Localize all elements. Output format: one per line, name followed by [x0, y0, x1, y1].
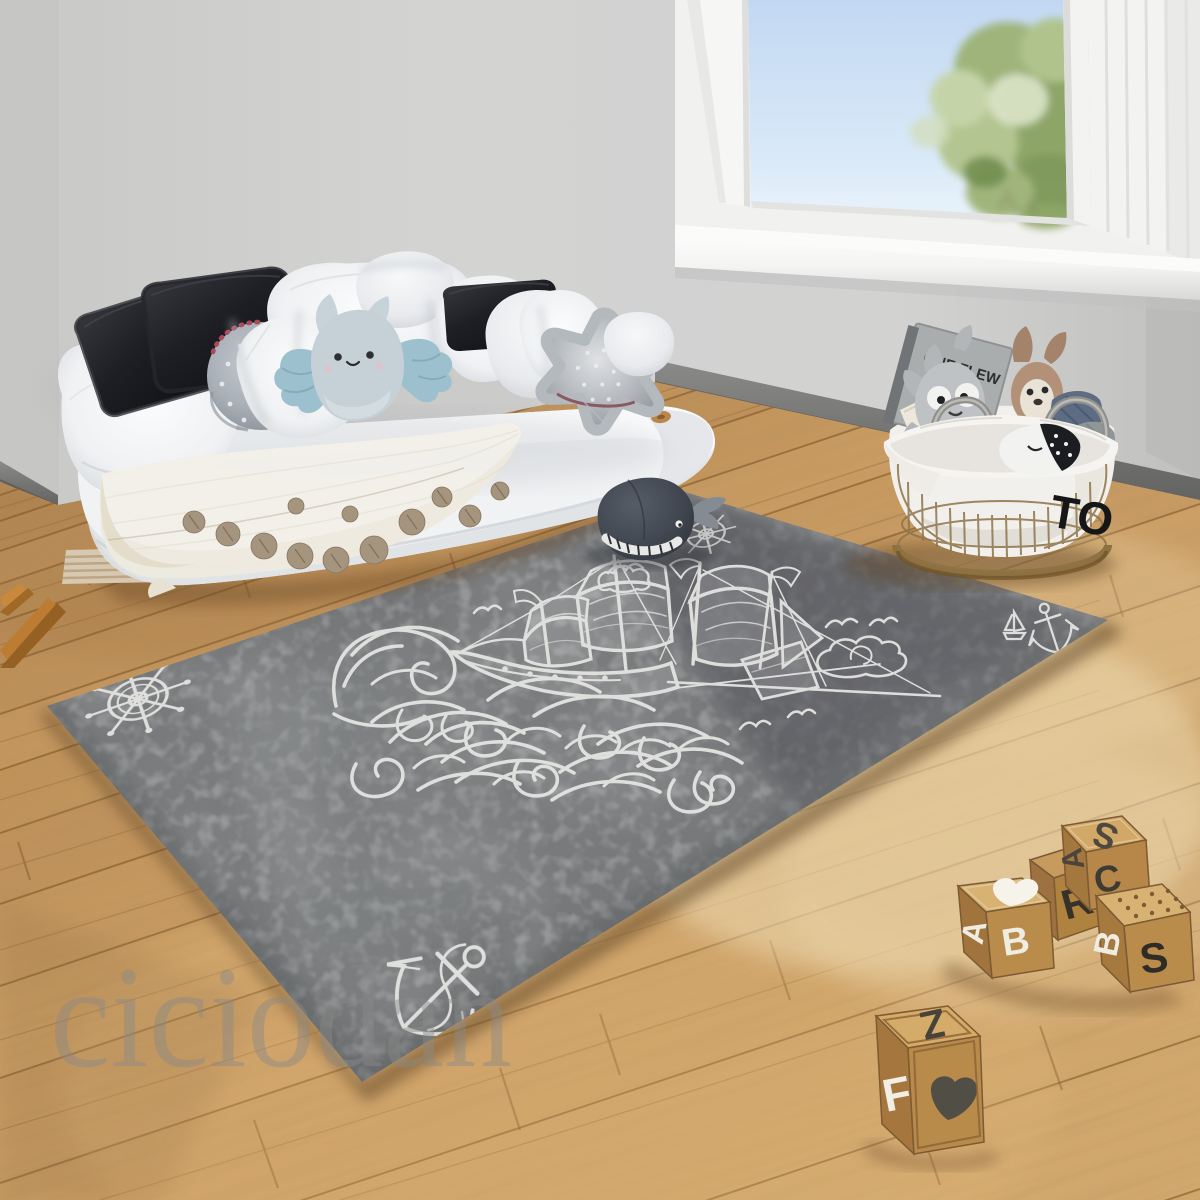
- svg-text:TO: TO: [1046, 485, 1117, 547]
- svg-text:ciciodan: ciciodan: [50, 936, 512, 1098]
